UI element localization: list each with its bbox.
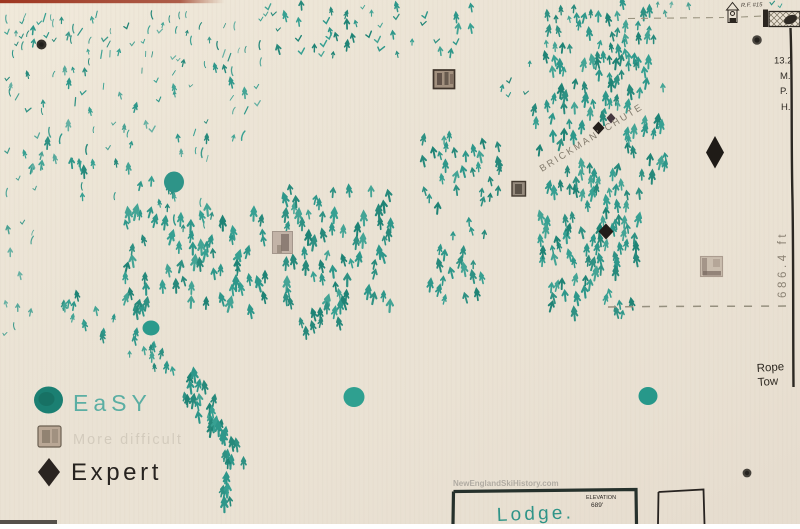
svg-text:R.F. #15: R.F. #15: [741, 2, 763, 9]
svg-text:Expert: Expert: [71, 459, 162, 486]
svg-text:EaSY: EaSY: [73, 390, 152, 416]
svg-text:Rope: Rope: [756, 361, 784, 375]
svg-text:Lodge.: Lodge.: [496, 502, 574, 524]
svg-text:ELEVATION: ELEVATION: [586, 495, 616, 501]
svg-text:More difficult: More difficult: [73, 432, 183, 448]
svg-text:P.: P.: [780, 86, 788, 97]
svg-text:NewEnglandSkiHistory.com: NewEnglandSkiHistory.com: [453, 479, 559, 488]
svg-text:H.: H.: [781, 102, 791, 113]
svg-text:Tow: Tow: [757, 376, 779, 389]
svg-text:686.4 ft: 686.4 ft: [777, 231, 789, 298]
svg-text:13.2: 13.2: [774, 56, 793, 67]
svg-text:M.: M.: [780, 71, 791, 82]
svg-text:689': 689': [591, 502, 603, 509]
